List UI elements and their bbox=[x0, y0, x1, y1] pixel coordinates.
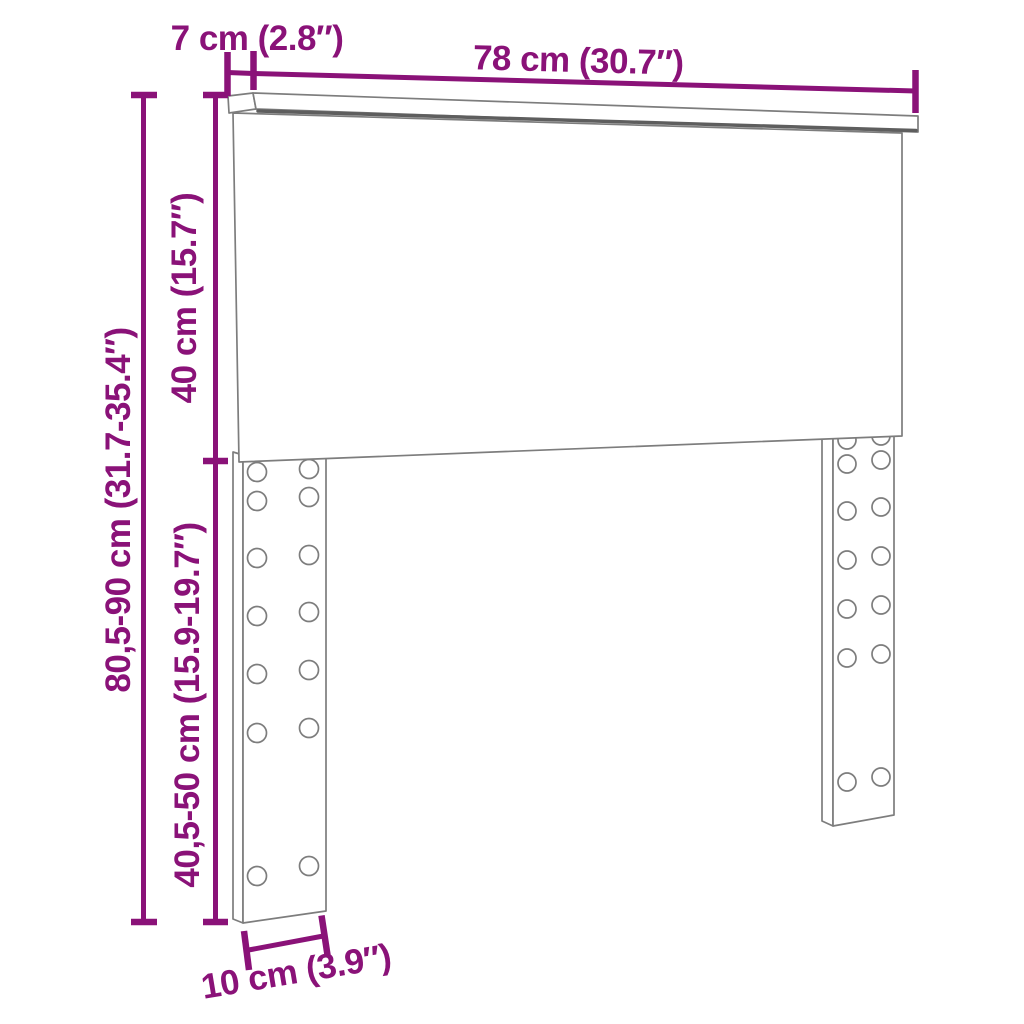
right-leg-front-face bbox=[833, 426, 894, 826]
right-leg bbox=[822, 426, 894, 826]
dim-label-total-height: 80,5-90 cm (31.7-35.4″) bbox=[99, 327, 138, 692]
headboard-drawing bbox=[228, 93, 918, 923]
left-leg bbox=[233, 450, 326, 923]
headboard-panel bbox=[233, 113, 902, 462]
dim-label-leg-height: 40,5-50 cm (15.9-19.7″) bbox=[168, 522, 207, 887]
top-cap-left-end bbox=[228, 93, 256, 113]
dim-cap-depth: 7 cm (2.8″) bbox=[171, 19, 344, 96]
dim-label-leg-width: 10 cm (3.9″) bbox=[198, 937, 394, 1007]
dimension-diagram: 80,5-90 cm (31.7-35.4″) 40 cm (15.7″) 40… bbox=[0, 0, 1024, 1024]
dim-label-cap-depth: 7 cm (2.8″) bbox=[171, 19, 344, 58]
dim-split-height: 40 cm (15.7″) 40,5-50 cm (15.9-19.7″) bbox=[165, 95, 228, 922]
dim-label-total-width: 78 cm (30.7″) bbox=[472, 38, 684, 83]
right-leg-side-face bbox=[822, 428, 833, 826]
left-leg-front-face bbox=[243, 450, 326, 923]
diagram-canvas: 80,5-90 cm (31.7-35.4″) 40 cm (15.7″) 40… bbox=[0, 0, 1024, 1024]
left-leg-side-face bbox=[233, 452, 243, 923]
dim-leg-width: 10 cm (3.9″) bbox=[198, 916, 394, 1007]
dim-total-height: 80,5-90 cm (31.7-35.4″) bbox=[99, 95, 157, 922]
dim-cap-depth-line bbox=[228, 73, 254, 74]
dim-label-upper-height: 40 cm (15.7″) bbox=[165, 193, 204, 404]
